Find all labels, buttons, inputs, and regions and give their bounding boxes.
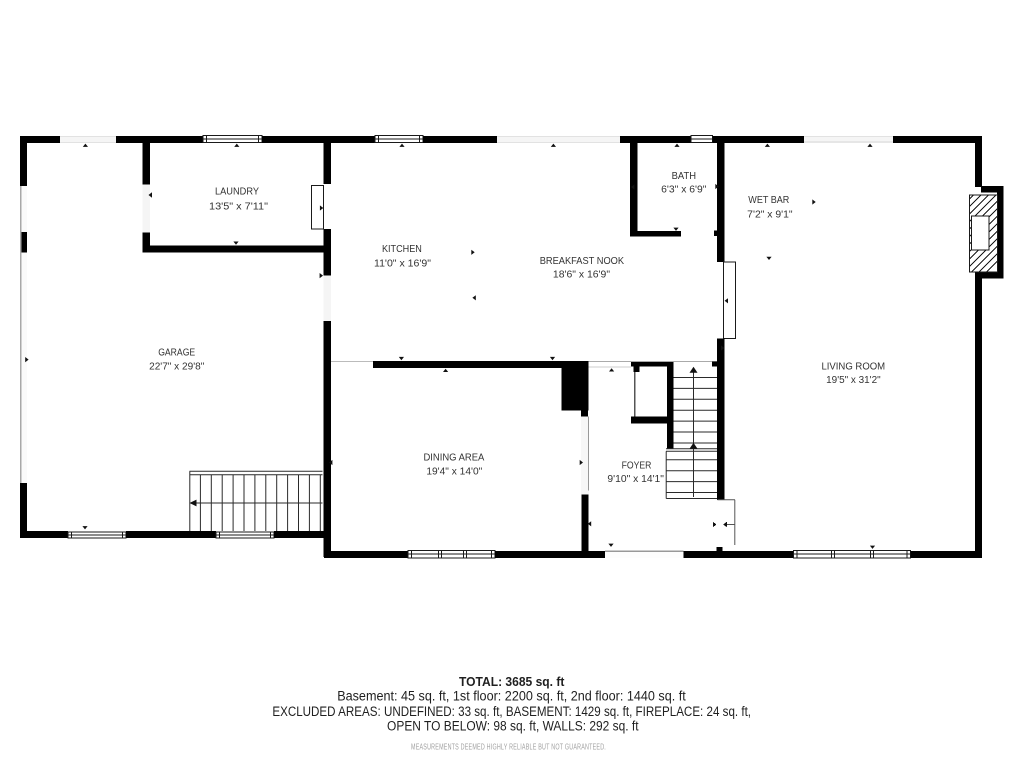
svg-text:7'2" x 9'1": 7'2" x 9'1" [747, 209, 793, 220]
svg-text:19'4" x 14'0": 19'4" x 14'0" [426, 466, 482, 477]
svg-text:EXCLUDED AREAS: UNDEFINED: 33: EXCLUDED AREAS: UNDEFINED: 33 sq. ft, BA… [272, 704, 751, 719]
svg-text:MEASUREMENTS DEEMED HIGHLY REL: MEASUREMENTS DEEMED HIGHLY RELIABLE BUT … [411, 743, 606, 752]
svg-text:19'5" x 31'2": 19'5" x 31'2" [826, 375, 881, 386]
svg-text:18'6" x 16'9": 18'6" x 16'9" [553, 270, 611, 281]
svg-text:6'3" x 6'9": 6'3" x 6'9" [661, 184, 707, 195]
svg-text:22'7" x 29'8": 22'7" x 29'8" [149, 361, 205, 372]
svg-text:9'10" x 14'1": 9'10" x 14'1" [607, 474, 664, 485]
svg-text:LAUNDRY: LAUNDRY [215, 187, 260, 198]
svg-text:Basement: 45 sq. ft, 1st floor: Basement: 45 sq. ft, 1st floor: 2200 sq.… [337, 689, 686, 704]
svg-text:TOTAL: 3685 sq. ft: TOTAL: 3685 sq. ft [459, 674, 565, 689]
svg-text:KITCHEN: KITCHEN [382, 244, 422, 255]
svg-text:13'5" x 7'11": 13'5" x 7'11" [209, 202, 269, 213]
svg-text:11'0" x 16'9": 11'0" x 16'9" [374, 258, 432, 269]
svg-text:GARAGE: GARAGE [158, 348, 195, 359]
svg-text:OPEN TO BELOW: 98 sq. ft, WALL: OPEN TO BELOW: 98 sq. ft, WALLS: 292 sq.… [387, 718, 639, 733]
svg-text:DINING AREA: DINING AREA [423, 452, 484, 463]
svg-text:LIVING ROOM: LIVING ROOM [821, 362, 885, 373]
svg-text:BATH: BATH [672, 171, 696, 182]
svg-text:FOYER: FOYER [622, 460, 652, 471]
svg-text:WET BAR: WET BAR [748, 195, 789, 206]
svg-text:BREAKFAST NOOK: BREAKFAST NOOK [540, 256, 625, 267]
